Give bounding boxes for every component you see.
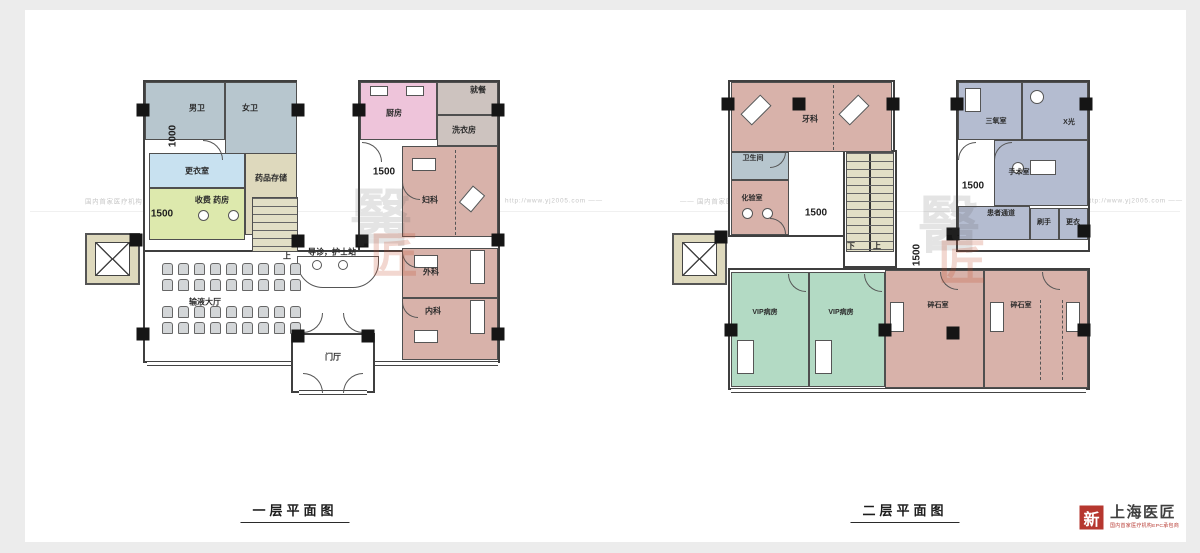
company-logo: 新 上海医匠 国内首家医疗机构EPC承包商 <box>1078 504 1200 533</box>
waiting-chair <box>258 279 269 291</box>
room-label-ozone-room: 三氧室 <box>986 116 1007 126</box>
structural-column <box>1078 324 1091 337</box>
annotation: 下 <box>847 241 855 252</box>
dimension-label: 1500 <box>805 208 827 219</box>
furniture <box>737 340 754 374</box>
waiting-chair <box>178 322 189 334</box>
waiting-chair <box>226 306 237 318</box>
room-label-lab: 化验室 <box>742 193 763 203</box>
waiting-chair <box>274 306 285 318</box>
room-label-gynecology: 妇科 <box>422 195 438 206</box>
room-label-operating-room: 手术室 <box>1009 167 1030 177</box>
furniture <box>338 260 348 270</box>
waiting-chair <box>162 263 173 275</box>
curtain-line <box>1062 300 1063 380</box>
waiting-chair <box>258 322 269 334</box>
structural-column <box>722 98 735 111</box>
structural-column <box>292 104 305 117</box>
dimension-label: 1500 <box>962 181 984 192</box>
plan-title-floor2: 二层平面图 <box>850 500 959 523</box>
structural-column <box>887 98 900 111</box>
waiting-chair <box>274 263 285 275</box>
structural-column <box>1080 98 1093 111</box>
furniture <box>228 210 239 221</box>
furniture <box>890 302 904 332</box>
curtain-line <box>1040 300 1041 380</box>
logo-texts: 上海医匠 国内首家医疗机构EPC承包商 <box>1110 504 1200 533</box>
dimension-label: 1500 <box>151 209 173 220</box>
elevator-car-icon <box>682 242 717 276</box>
waiting-chair <box>210 263 221 275</box>
furniture <box>990 302 1004 332</box>
furniture <box>965 88 981 112</box>
waiting-chair <box>162 279 173 291</box>
furniture <box>815 340 832 374</box>
furniture <box>470 300 485 334</box>
room-label-cashier-pharmacy: 收费 药房 <box>195 195 229 206</box>
waiting-chair <box>274 322 285 334</box>
room-label-kitchen: 厨房 <box>386 108 402 119</box>
furniture <box>412 158 436 171</box>
room-label-dining: 就餐 <box>470 85 486 96</box>
annotation: 导诊，护士站 <box>308 247 356 258</box>
structural-column <box>292 235 305 248</box>
room-label-dental: 牙科 <box>802 114 818 125</box>
waiting-chair <box>242 279 253 291</box>
structural-column <box>130 234 143 247</box>
structural-column <box>715 231 728 244</box>
window-line <box>375 361 498 366</box>
annotation: 上 <box>283 251 291 262</box>
room-label-changing-room: 更衣室 <box>185 165 209 176</box>
waiting-chair <box>242 322 253 334</box>
room-label-vip-ward-2: VIP病房 <box>828 307 853 317</box>
structural-column <box>362 330 375 343</box>
room-dining <box>437 82 498 115</box>
waiting-chair <box>226 279 237 291</box>
furniture <box>742 208 753 219</box>
room-label-lithotripsy-1: 碎石室 <box>928 300 949 310</box>
dimension-label: 1500 <box>912 244 923 266</box>
logo-title: 上海医匠 <box>1110 504 1200 522</box>
nurse-station-counter <box>297 256 379 288</box>
structural-column <box>492 234 505 247</box>
structural-column <box>879 324 892 337</box>
stairs <box>846 152 894 252</box>
drawing-sheet: 国内首家医疗机构EPC承包商 http://www.yj2005.com —— … <box>25 10 1186 542</box>
room-label-sanitary-room: 卫生间 <box>743 153 764 163</box>
furniture <box>370 86 388 96</box>
furniture <box>1030 90 1044 104</box>
waiting-chair <box>178 263 189 275</box>
structural-column <box>292 330 305 343</box>
waiting-chair <box>226 322 237 334</box>
waiting-chair <box>162 322 173 334</box>
room-label-lithotripsy-2: 碎石室 <box>1011 300 1032 310</box>
room-womens-toilet <box>225 82 297 155</box>
waiting-chair <box>258 306 269 318</box>
window-line <box>147 361 291 366</box>
waiting-chair <box>194 322 205 334</box>
waiting-chair <box>290 306 301 318</box>
furniture <box>312 260 322 270</box>
structural-column <box>492 104 505 117</box>
room-label-internal-medicine: 内科 <box>425 306 441 317</box>
logo-seal-icon: 新 <box>1078 504 1105 531</box>
waiting-chair <box>242 263 253 275</box>
window-line <box>731 388 1086 393</box>
logo-subtitle: 国内首家医疗机构EPC承包商 <box>1110 522 1179 529</box>
room-label-scrub-room: 刷手 <box>1037 217 1051 227</box>
furniture <box>470 250 485 284</box>
annotation: 上 <box>873 241 881 252</box>
waiting-chair <box>274 279 285 291</box>
waiting-chair <box>178 306 189 318</box>
plan-title-floor1: 一层平面图 <box>240 500 349 523</box>
room-mens-toilet <box>145 82 225 140</box>
waiting-chair <box>242 306 253 318</box>
furniture <box>406 86 424 96</box>
structural-column <box>353 104 366 117</box>
structural-column <box>947 327 960 340</box>
structural-column <box>137 104 150 117</box>
room-label-patient-corridor: 患者通道 <box>987 208 1015 218</box>
waiting-chair <box>210 322 221 334</box>
watermark-text: http://www.yj2005.com —— <box>1085 197 1183 204</box>
watermark-text: http://www.yj2005.com —— <box>505 197 603 204</box>
room-label-medicine-storage: 药品存储 <box>255 173 287 184</box>
waiting-chair <box>258 263 269 275</box>
structural-column <box>793 98 806 111</box>
waiting-chair <box>178 279 189 291</box>
dimension-label: 1000 <box>168 125 179 147</box>
waiting-chair <box>194 306 205 318</box>
waiting-chair <box>194 279 205 291</box>
room-label-locker-room: 更衣 <box>1066 217 1080 227</box>
curtain-line <box>455 150 456 235</box>
room-label-mens-toilet: 男卫 <box>189 103 205 114</box>
waiting-chair <box>194 263 205 275</box>
structural-column <box>137 328 150 341</box>
waiting-chair <box>290 263 301 275</box>
structural-column <box>951 98 964 111</box>
elevator-car-icon <box>95 242 130 276</box>
annotation: 输液大厅 <box>189 297 221 308</box>
room-label-womens-toilet: 女卫 <box>242 103 258 114</box>
room-label-surgery-dept: 外科 <box>423 267 439 278</box>
waiting-chair <box>226 263 237 275</box>
waiting-chair <box>290 279 301 291</box>
annotation: 门厅 <box>325 352 341 363</box>
room-label-laundry: 洗衣房 <box>452 125 476 136</box>
dimension-label: 1500 <box>373 167 395 178</box>
waiting-chair <box>210 279 221 291</box>
structural-column <box>947 228 960 241</box>
furniture <box>1030 160 1056 175</box>
structural-column <box>492 328 505 341</box>
furniture <box>198 210 209 221</box>
waiting-chair <box>210 306 221 318</box>
curtain-line <box>833 85 834 150</box>
furniture <box>414 330 438 343</box>
room-label-xray-room: X光 <box>1063 117 1075 127</box>
structural-column <box>356 235 369 248</box>
structural-column <box>725 324 738 337</box>
waiting-chair <box>162 306 173 318</box>
page-background: { "palette": { "rose": "#d8b2aa", "blueg… <box>0 0 1200 553</box>
room-label-vip-ward-1: VIP病房 <box>752 307 777 317</box>
